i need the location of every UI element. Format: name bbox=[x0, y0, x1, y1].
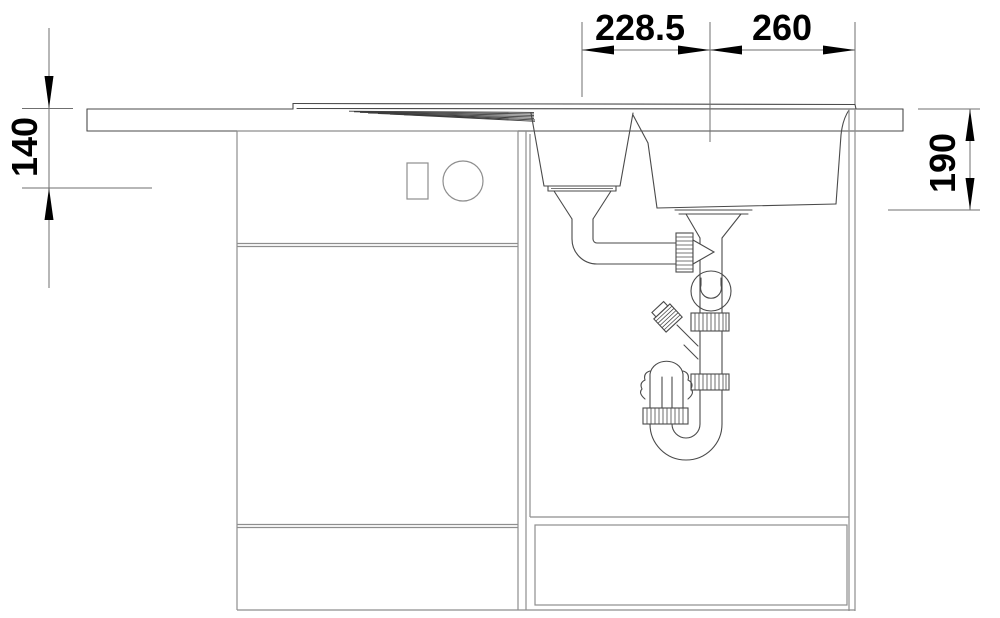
arrowhead bbox=[45, 188, 54, 220]
outlet-riser bbox=[641, 361, 693, 424]
arrowhead bbox=[823, 46, 855, 55]
trap-nut-lower bbox=[691, 374, 729, 390]
dimension-top: 228.5 260 bbox=[582, 7, 855, 142]
dimension-value-right: 190 bbox=[922, 133, 963, 193]
u-bend bbox=[650, 424, 722, 460]
riser-nut bbox=[643, 408, 688, 424]
dimension-right: 190 bbox=[888, 109, 980, 210]
small-bowl-drain bbox=[548, 186, 676, 264]
sink-rim-profile bbox=[293, 104, 856, 110]
sink-drawing: 228.5 260 140 190 bbox=[0, 0, 1000, 618]
technical-drawing-canvas: 228.5 260 140 190 bbox=[0, 0, 1000, 618]
arrowhead bbox=[966, 109, 975, 141]
bowl-divider bbox=[633, 115, 648, 143]
dimension-value-left: 140 bbox=[4, 117, 45, 177]
arrowhead bbox=[966, 178, 975, 210]
cabinet-lower-front bbox=[535, 525, 847, 605]
control-knob bbox=[443, 161, 483, 201]
main-bowl bbox=[648, 110, 849, 208]
dimension-left: 140 bbox=[4, 28, 152, 288]
control-switch bbox=[407, 163, 428, 199]
arrowhead bbox=[45, 76, 54, 109]
dimension-value-top-right: 260 bbox=[752, 7, 812, 48]
tee-union-nut bbox=[676, 233, 714, 272]
trap-ring bbox=[691, 271, 731, 311]
siphon-trap bbox=[641, 271, 731, 460]
arrowhead bbox=[710, 46, 742, 55]
dimension-value-top-left: 228.5 bbox=[595, 7, 685, 48]
small-bowl bbox=[531, 113, 633, 186]
trap-nut-upper bbox=[691, 313, 729, 331]
drainboard-hatch bbox=[349, 111, 535, 121]
cabinet bbox=[237, 109, 855, 611]
cone-fitting bbox=[693, 240, 714, 264]
